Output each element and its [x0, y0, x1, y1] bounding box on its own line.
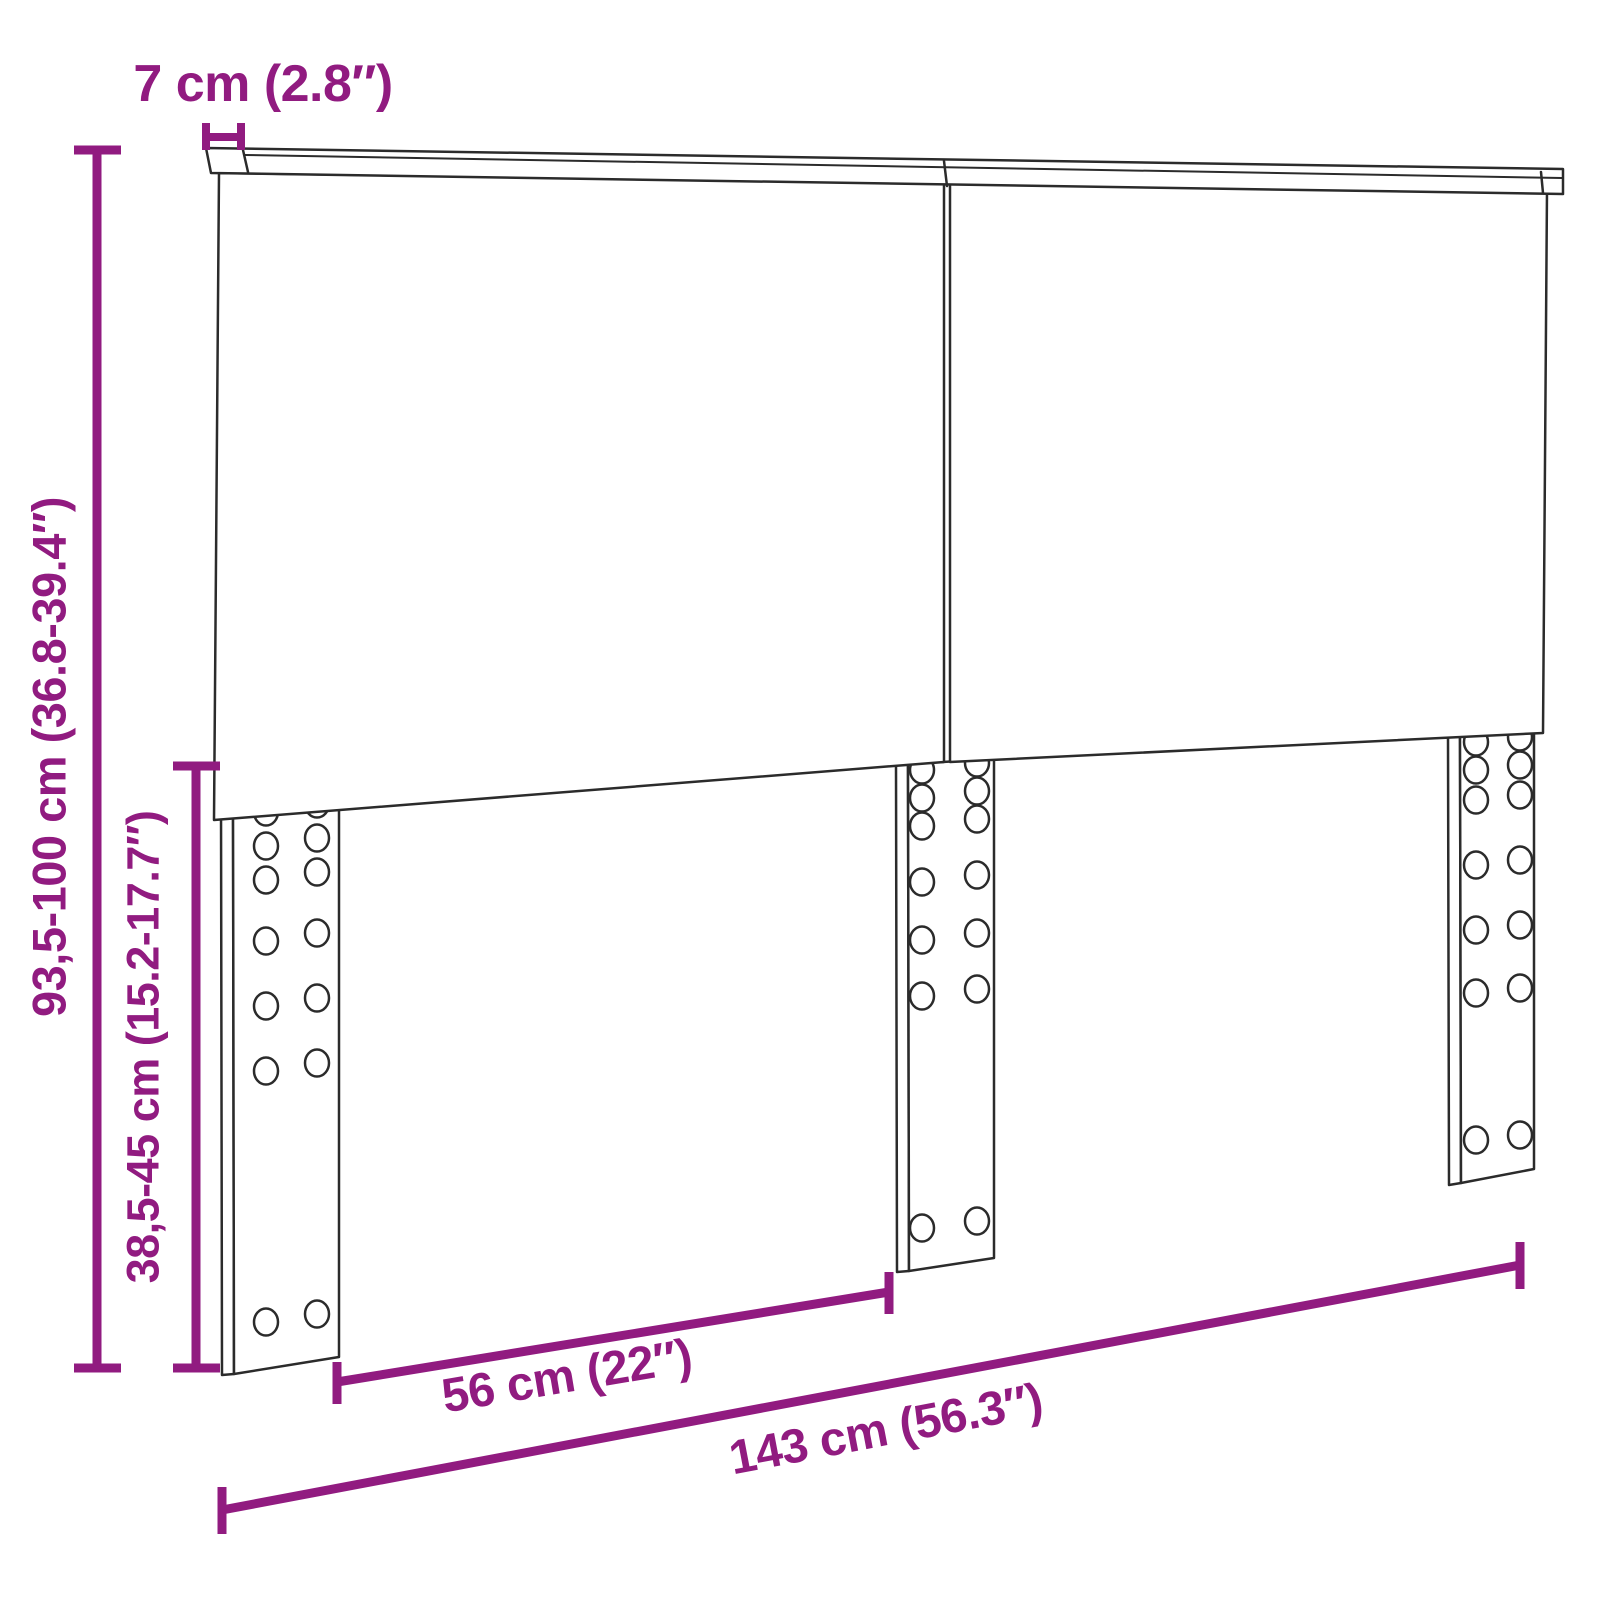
dimension-label-total-height: 93,5-100 cm (36.8-39.4″): [26, 497, 73, 1017]
left-panel: [214, 173, 944, 820]
dimension-label-rail-thickness: 7 cm (2.8″): [133, 58, 392, 110]
right-leg: [1448, 724, 1534, 1186]
dimension-diagram: 7 cm (2.8″) 93,5-100 cm (36.8-39.4″) 38,…: [0, 0, 1600, 1600]
left-leg: [221, 791, 339, 1376]
dim-total-width-line: [222, 1242, 1520, 1534]
dim-total-height-line: [74, 150, 121, 1368]
middle-leg: [896, 750, 994, 1273]
headboard-line-drawing: [0, 0, 1600, 1600]
right-panel: [950, 183, 1547, 762]
dim-rail-thickness-bracket: [206, 123, 241, 150]
dimension-label-leg-height: 38,5-45 cm (15.2-17.7″): [121, 811, 166, 1284]
dim-leg-height-line: [173, 766, 220, 1368]
